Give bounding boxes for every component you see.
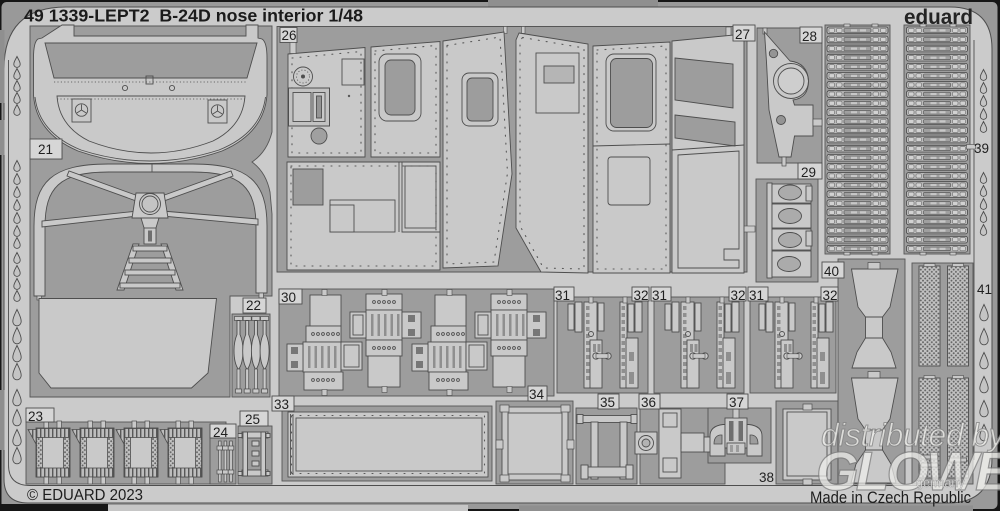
svg-text:41: 41 (977, 282, 992, 297)
svg-text:38: 38 (759, 470, 774, 485)
svg-text:31: 31 (749, 288, 764, 303)
svg-text:35: 35 (600, 395, 615, 410)
svg-text:germany: germany (916, 476, 965, 490)
svg-text:34: 34 (529, 387, 545, 402)
svg-text:© EDUARD 2023: © EDUARD 2023 (27, 487, 143, 504)
svg-text:32: 32 (823, 288, 838, 303)
svg-text:24: 24 (213, 425, 229, 440)
svg-text:GLOWEB: GLOWEB (816, 440, 1000, 502)
svg-text:30: 30 (281, 290, 296, 305)
svg-text:40: 40 (824, 264, 839, 279)
svg-text:21: 21 (38, 142, 53, 157)
svg-text:32: 32 (634, 288, 649, 303)
svg-text:36: 36 (641, 395, 656, 410)
svg-text:33: 33 (274, 397, 289, 412)
svg-text:31: 31 (652, 288, 667, 303)
svg-text:22: 22 (246, 298, 261, 313)
svg-text:26: 26 (282, 28, 297, 43)
svg-text:29: 29 (801, 165, 816, 180)
svg-text:37: 37 (729, 395, 744, 410)
svg-text:28: 28 (802, 29, 817, 44)
svg-text:25: 25 (245, 412, 260, 427)
svg-text:31: 31 (555, 288, 570, 303)
svg-text:49 1339-LEPT2 B-24D nose inte: 49 1339-LEPT2 B-24D nose interior 1/48 (24, 6, 363, 26)
svg-text:32: 32 (731, 288, 746, 303)
svg-text:39: 39 (974, 141, 989, 156)
svg-text:27: 27 (735, 27, 750, 42)
svg-text:23: 23 (28, 409, 43, 424)
